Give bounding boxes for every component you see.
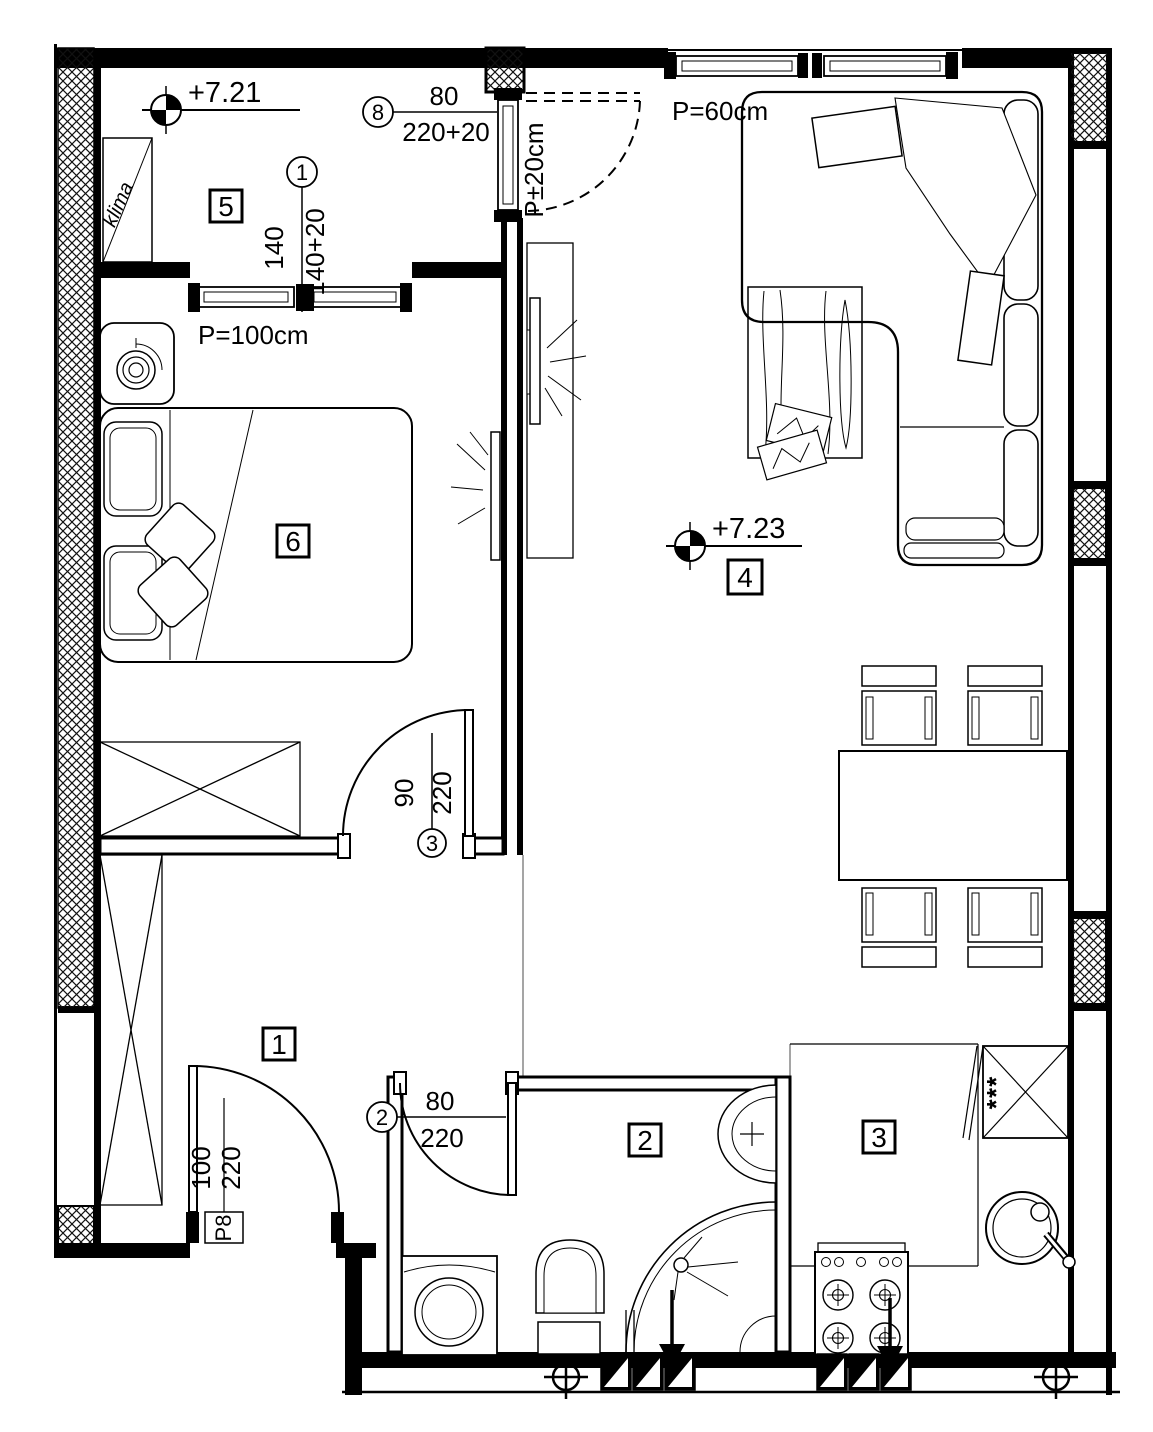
bed (100, 408, 412, 662)
ac-unit: klima (99, 138, 152, 262)
room-number: 1 (271, 1029, 287, 1060)
pillow (104, 422, 162, 516)
washbasin (718, 1085, 776, 1183)
living-room-window (664, 50, 962, 79)
room-number: 3 (871, 1122, 887, 1153)
bathroom-right-wall (776, 1077, 790, 1352)
parapet-loggia-window: P=100cm (198, 320, 309, 350)
entrance-width: 100 (186, 1146, 216, 1189)
bedroom-tv (451, 432, 500, 560)
right-wall-hatch-low (1072, 918, 1106, 1004)
room-number: 4 (737, 562, 753, 593)
floor-plan-page: klima (0, 0, 1153, 1432)
left-wall-bottom-hatch-block (58, 1206, 94, 1244)
burner (870, 1280, 900, 1310)
opening-ref: 1 (296, 160, 308, 185)
tv-rays (451, 432, 488, 524)
opening-height: 140+20 (300, 208, 330, 295)
entrance-height: 220 (216, 1146, 246, 1189)
opening-dim-3: 3 90 220 (389, 733, 457, 857)
opening-height: 220+20 (402, 117, 489, 147)
sofa (742, 92, 1042, 565)
right-wall-hatch-top (1070, 52, 1108, 142)
washing-machine (402, 1256, 497, 1355)
fridge: *** (963, 1046, 1068, 1140)
burner (823, 1323, 853, 1353)
room-number: 5 (218, 191, 234, 222)
room-label-2: 2 (629, 1124, 661, 1156)
sofa-back-cushion (1004, 304, 1038, 426)
sofa-seat-cushion (904, 543, 1004, 558)
left-wall-hatch (58, 48, 94, 1008)
room-label-3: 3 (863, 1121, 895, 1153)
opening-dim-8: 8 80 220+20 (363, 81, 497, 147)
right-wall-hatch-mid (1072, 488, 1106, 559)
entrance-label: P8 (211, 1215, 236, 1242)
kitchen-sink (986, 1192, 1075, 1268)
opening-ref: 2 (376, 1105, 388, 1130)
opening-width: 80 (426, 1086, 455, 1116)
sofa-seat-cushion (906, 518, 1004, 540)
opening-ref: 8 (372, 100, 384, 125)
opening-width: 140 (259, 226, 289, 269)
level-value: +7.21 (188, 77, 261, 109)
kitchen-counter (790, 1044, 978, 1266)
level-marker-loggia: +7.21 (142, 77, 300, 134)
burner (823, 1280, 853, 1310)
sofa-back-cushion (1004, 430, 1038, 546)
opening-width: 80 (430, 81, 459, 111)
hallway-wardrobe (100, 855, 162, 1205)
shower (626, 1202, 776, 1352)
door3-jamb-left (338, 834, 350, 858)
opening-height: 220 (427, 771, 457, 814)
tv-unit (527, 243, 586, 558)
vent-block-group-a (601, 1354, 695, 1390)
room-number: 2 (637, 1125, 653, 1156)
opening-ref: 3 (426, 831, 438, 856)
toilet (536, 1240, 604, 1354)
door3-jamb-right (463, 834, 475, 858)
level-value: +7.23 (712, 513, 785, 545)
loggia-door-window (494, 88, 522, 222)
room-boundary-lines (523, 855, 790, 1077)
pillow-inner (110, 428, 156, 510)
freezer-stars: *** (983, 1075, 1010, 1109)
bedroom-wardrobe (100, 742, 300, 836)
top-center-column-hatch (486, 48, 524, 92)
nightstand (100, 323, 174, 404)
parapet-living-window: P=60cm (672, 96, 768, 126)
room-label-5: 5 (210, 190, 242, 222)
room-label-1: 1 (263, 1028, 295, 1060)
opening-height: 220 (420, 1123, 463, 1153)
stove (815, 1243, 908, 1355)
cushion (135, 554, 211, 630)
floor-plan-drawing: klima (0, 0, 1153, 1432)
parapet-loggia-door: P±20cm (519, 122, 549, 217)
room-label-4: 4 (728, 560, 762, 594)
opening-width: 90 (389, 779, 419, 808)
sofa-pillow (812, 106, 902, 167)
room-label-6: 6 (277, 525, 309, 557)
bedroom-bottom-wall (100, 838, 345, 854)
room-number: 6 (285, 526, 301, 557)
shower-head (674, 1258, 688, 1272)
dining-table (839, 751, 1067, 880)
bathroom-top-wall (512, 1077, 776, 1090)
vent-block-group-b (817, 1354, 911, 1390)
